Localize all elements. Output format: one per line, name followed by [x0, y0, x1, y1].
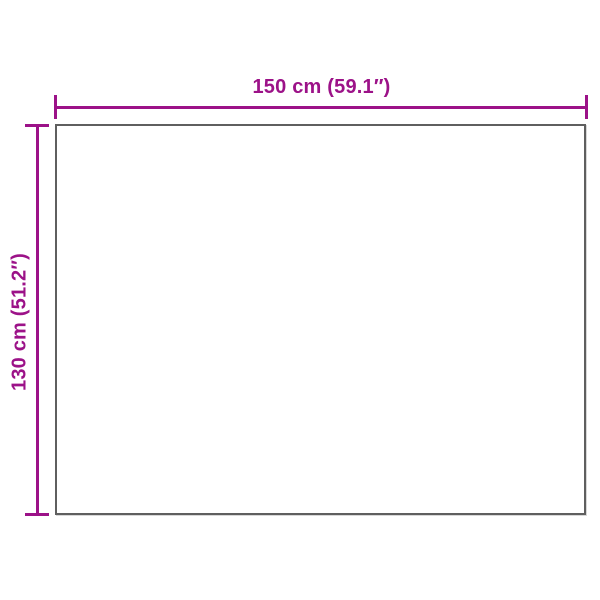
height-dimension-top-tick [25, 124, 49, 127]
height-dimension-label: 130 cm (51.2″) [9, 253, 32, 391]
width-dimension-right-tick [585, 95, 588, 119]
dimension-diagram: 150 cm (59.1″) 130 cm (51.2″) [0, 0, 600, 600]
height-dimension-line [36, 125, 39, 515]
width-dimension-line [55, 106, 588, 109]
product-outline [55, 124, 586, 515]
height-dimension-bottom-tick [25, 513, 49, 516]
width-dimension-left-tick [54, 95, 57, 119]
width-dimension-label: 150 cm (59.1″) [55, 76, 588, 99]
